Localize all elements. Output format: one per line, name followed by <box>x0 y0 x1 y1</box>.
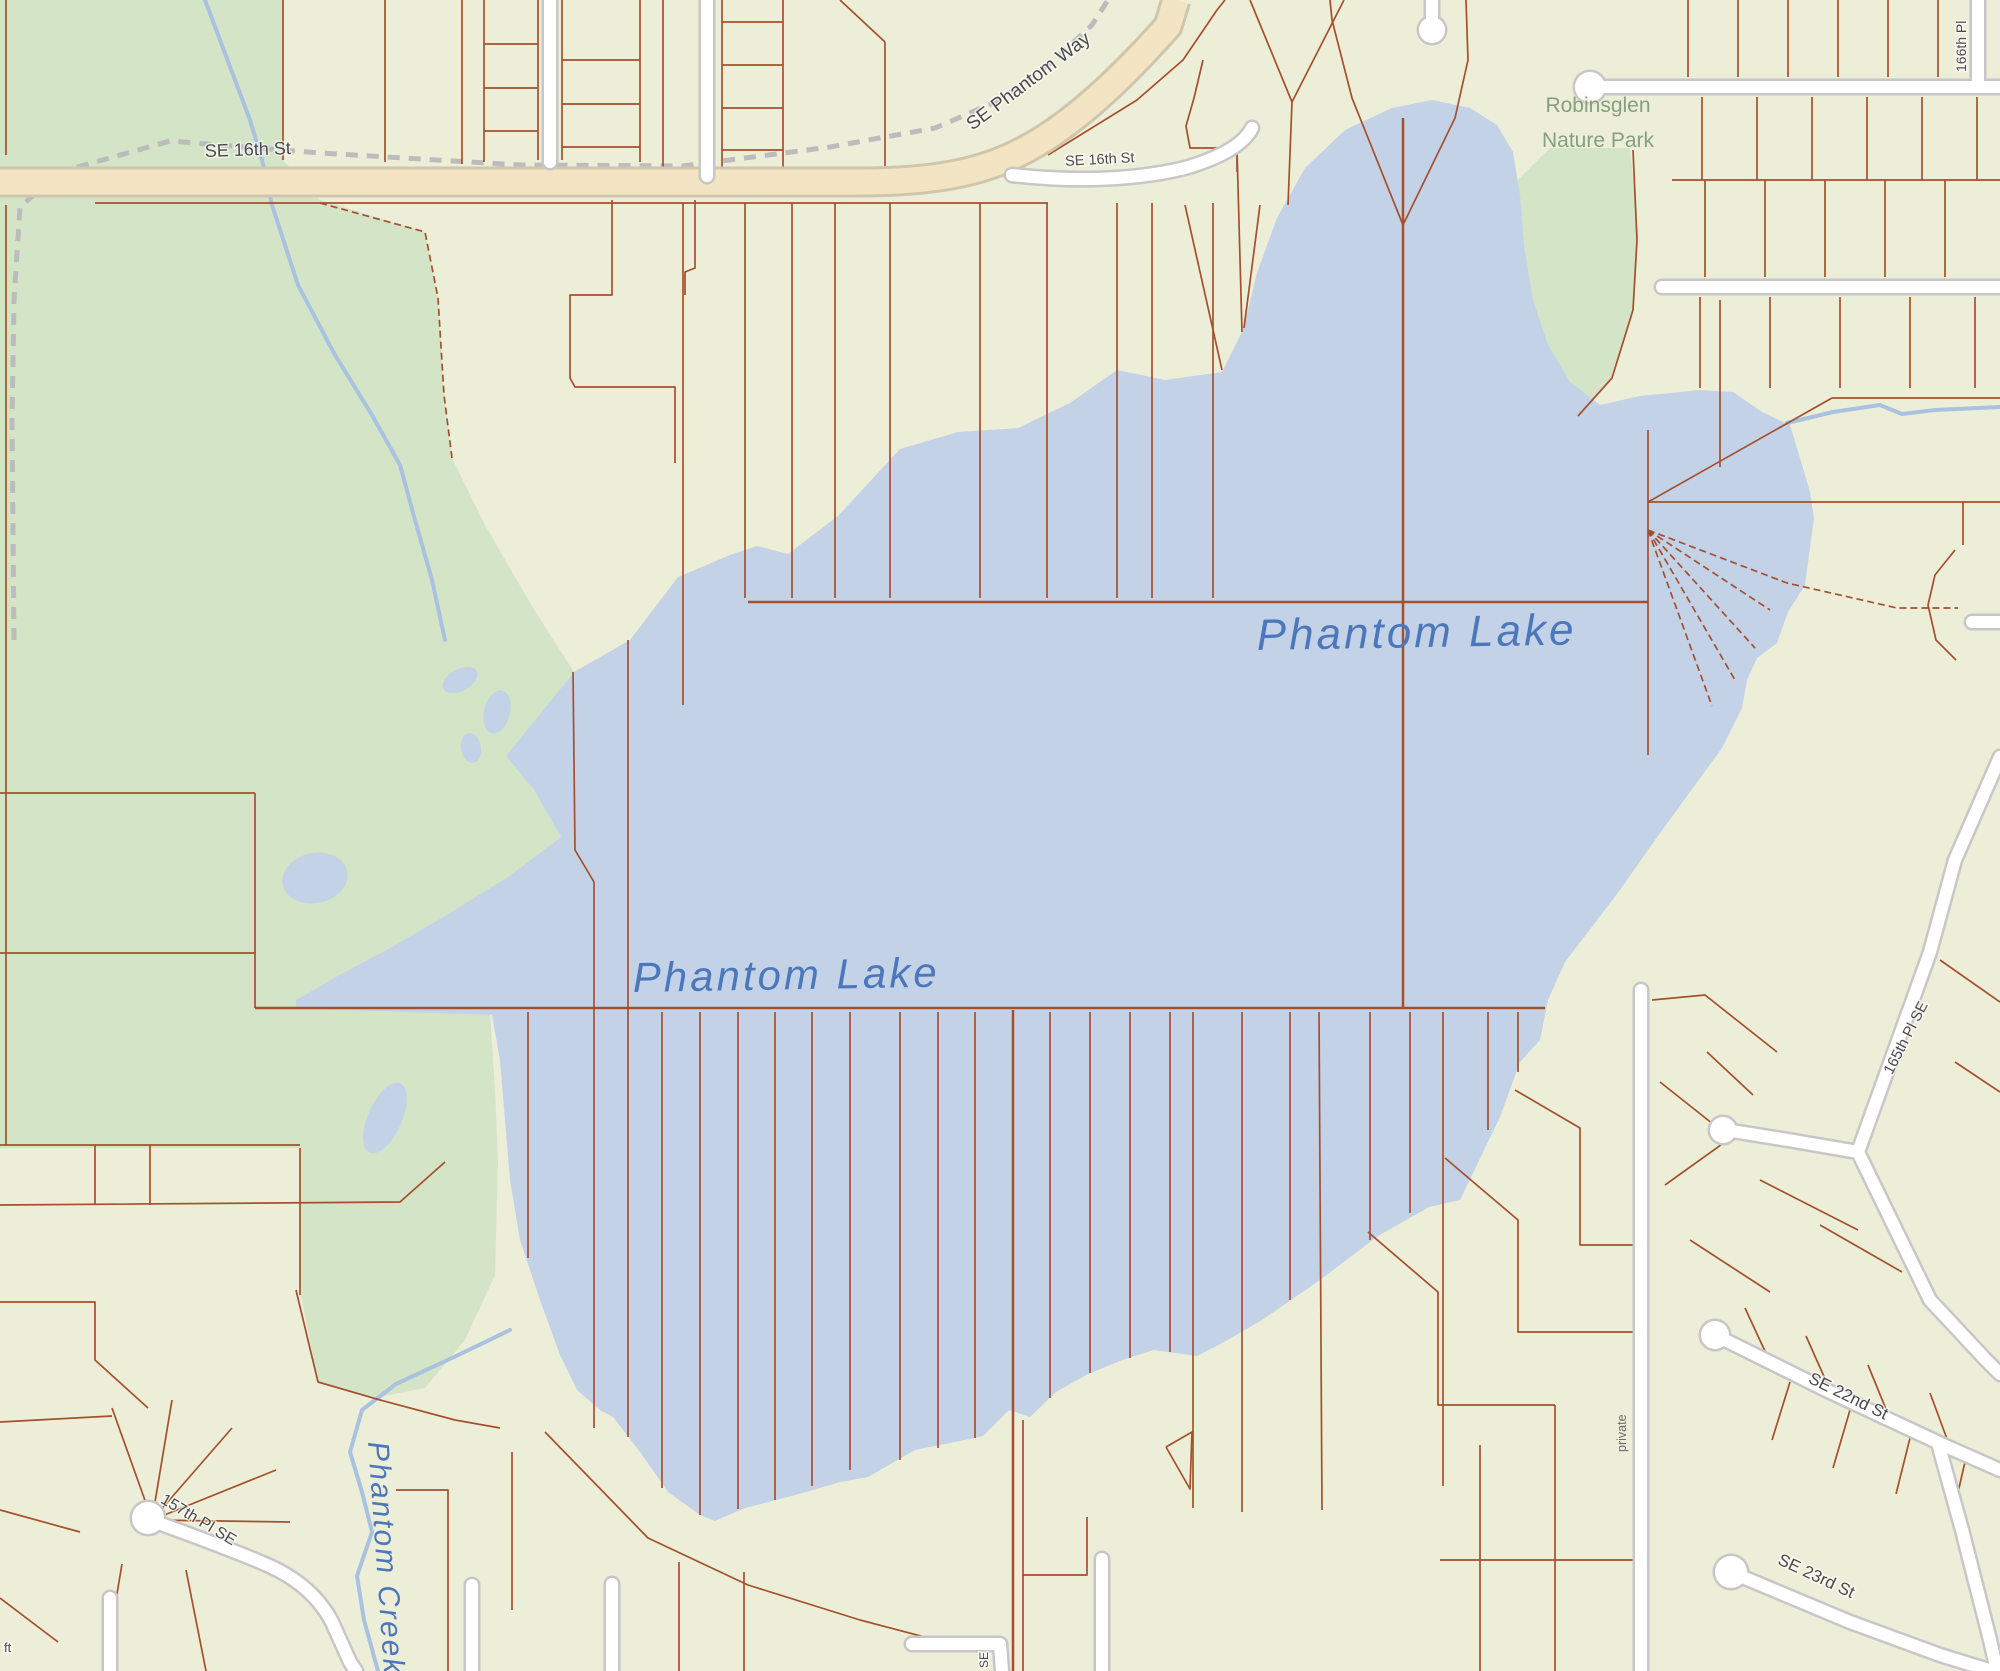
label-phantom-lake-west: Phantom Lake <box>632 949 940 1001</box>
label-se-16th-st-west: SE 16th St <box>204 138 291 161</box>
map-canvas[interactable]: SE 16th StSE Phantom WaySE 16th StRobins… <box>0 0 2000 1671</box>
label-private: private <box>1615 1414 1629 1452</box>
bulb-157th[interactable] <box>132 1502 164 1534</box>
label-ft-partial: ft <box>4 1640 12 1655</box>
map-viewport[interactable]: SE 16th StSE Phantom WaySE 16th StRobins… <box>0 0 2000 1671</box>
bulb-top-stub[interactable] <box>1419 17 1445 43</box>
bulb-se-23rd[interactable] <box>1715 1556 1747 1588</box>
label-phantom-lake-east: Phantom Lake <box>1256 605 1577 660</box>
label-166th-pl: 166th Pl <box>1953 21 1969 72</box>
label-robinsglen-line1: Robinsglen <box>1545 94 1650 117</box>
bulb-165th-branch[interactable] <box>1710 1117 1736 1143</box>
label-se-partial: SE <box>977 1652 991 1668</box>
bulb-se-22nd[interactable] <box>1701 1321 1729 1349</box>
label-robinsglen-line2: Nature Park <box>1542 129 1655 152</box>
